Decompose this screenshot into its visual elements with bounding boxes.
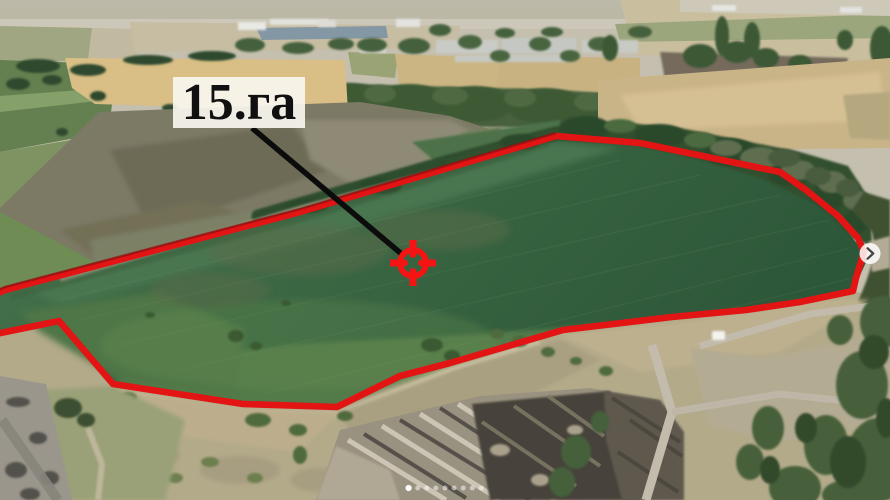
- svg-text:15.га: 15.га: [182, 74, 297, 131]
